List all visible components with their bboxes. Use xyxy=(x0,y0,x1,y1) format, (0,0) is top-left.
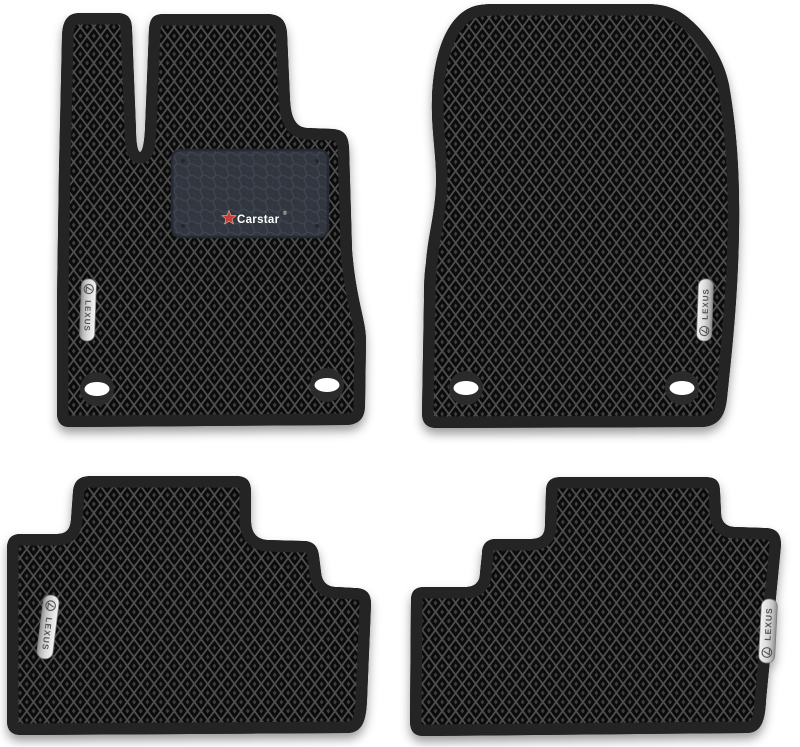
lexus-badge-label: LEXUS xyxy=(701,288,711,320)
product-image: Carstar ® LEXUS xyxy=(0,0,800,747)
mat-front-right: LEXUS xyxy=(422,4,739,428)
patch-rivet xyxy=(315,224,319,228)
mat-rear-right: LEXUS xyxy=(410,477,781,736)
lexus-badge-label: LEXUS xyxy=(763,607,775,641)
mat-rear-left: LEXUS xyxy=(7,476,371,735)
fixing-hole xyxy=(449,371,483,405)
fixing-hole xyxy=(80,372,114,406)
lexus-badge: LEXUS xyxy=(758,599,777,664)
lexus-badge: LEXUS xyxy=(696,279,713,341)
lexus-badge: LEXUS xyxy=(79,279,96,341)
fixing-hole xyxy=(310,368,344,402)
patch-rivet xyxy=(181,159,185,163)
carstar-brand-text: Carstar xyxy=(237,214,280,226)
carstar-reg-mark: ® xyxy=(283,210,287,217)
fixing-hole xyxy=(665,371,699,405)
heel-pad-patch: Carstar ® xyxy=(172,150,328,237)
patch-rivet xyxy=(315,159,319,163)
patch-rivet xyxy=(181,224,185,228)
lexus-badge-label: LEXUS xyxy=(82,300,92,332)
mat-front-left: Carstar ® LEXUS xyxy=(57,13,366,427)
floor-mats-set: Carstar ® LEXUS xyxy=(0,0,800,747)
